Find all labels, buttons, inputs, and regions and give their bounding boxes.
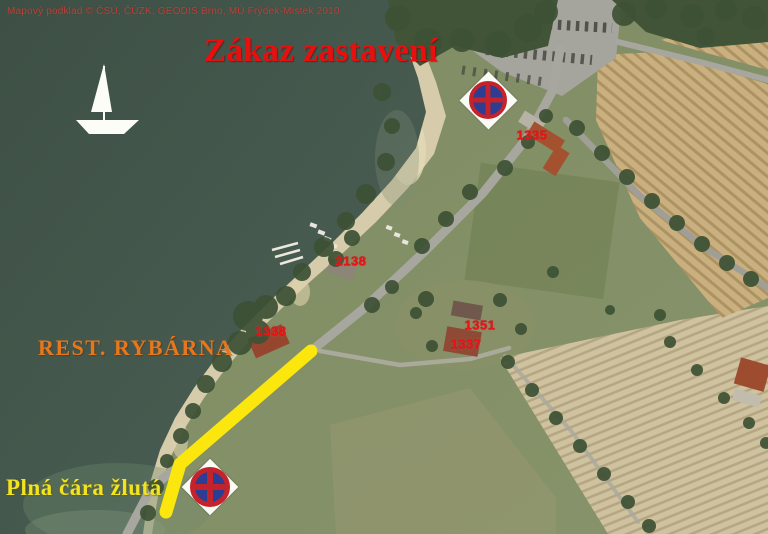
no-stopping-face bbox=[190, 467, 230, 507]
map-title: Zákaz zastavení bbox=[204, 33, 438, 70]
map-copyright: Mapový podklad © ČSÚ, ČÚZK, GEODIS Brno,… bbox=[7, 6, 340, 17]
restaurant-label: REST. RYBÁRNA bbox=[38, 335, 234, 361]
aerial-photo bbox=[0, 0, 768, 534]
no-stopping-sign-icon bbox=[459, 71, 517, 129]
no-stopping-sign-icon bbox=[182, 459, 238, 515]
parcel-label-1337: 1337 bbox=[451, 337, 482, 352]
parcel-label-2138: 2138 bbox=[336, 254, 367, 269]
no-stopping-face bbox=[469, 81, 507, 119]
parcel-label-1338: 1338 bbox=[256, 324, 287, 339]
parcel-label-1335: 1335 bbox=[517, 128, 548, 143]
sign-cross-bar bbox=[486, 81, 491, 119]
yellow-line-label: Plná čára žlutá bbox=[6, 475, 162, 501]
aerial-map: Mapový podklad © ČSÚ, ČÚZK, GEODIS Brno,… bbox=[0, 0, 768, 534]
sign-cross-bar bbox=[207, 467, 213, 507]
parcel-label-1351: 1351 bbox=[465, 318, 496, 333]
